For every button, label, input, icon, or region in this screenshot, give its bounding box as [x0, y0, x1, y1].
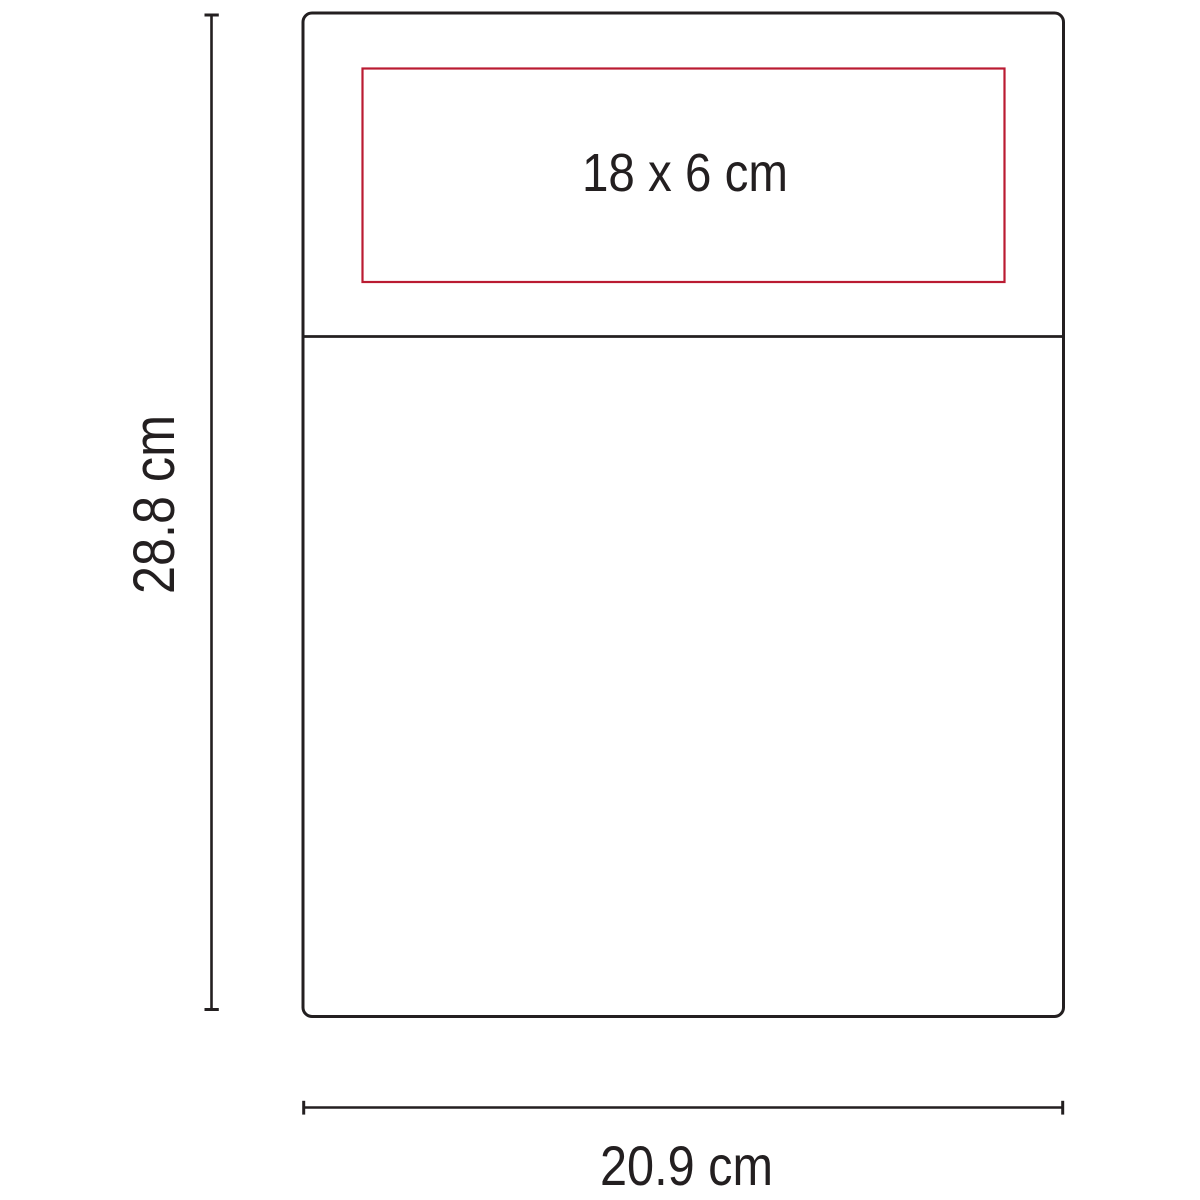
- svg-text:28.8 cm: 28.8 cm: [122, 415, 187, 594]
- svg-text:20.9 cm: 20.9 cm: [600, 1134, 773, 1197]
- svg-text:18 x 6 cm: 18 x 6 cm: [582, 143, 788, 203]
